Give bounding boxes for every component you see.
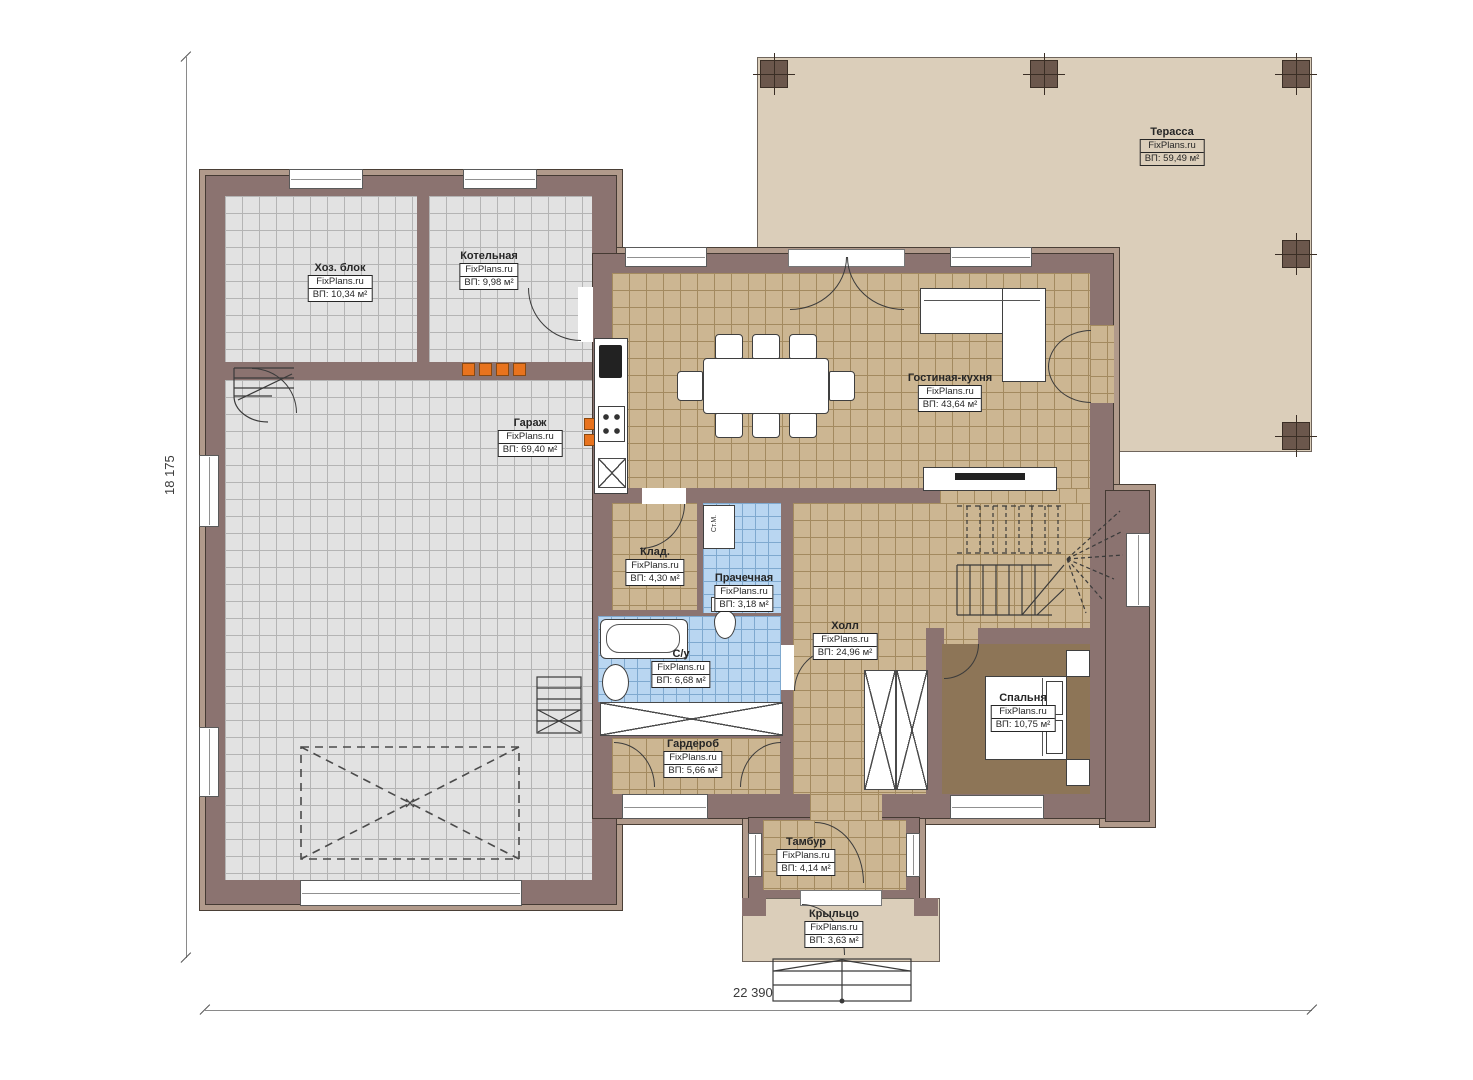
room-name: Котельная xyxy=(459,250,518,262)
utility-steps xyxy=(232,366,298,422)
porch-wall-stub xyxy=(914,898,938,916)
brand-label: FixPlans.ru xyxy=(652,662,709,675)
vent-marker xyxy=(496,363,509,376)
brand-label: FixPlans.ru xyxy=(626,560,683,573)
chair xyxy=(715,413,743,438)
room-area: ВП: 10,75 м² xyxy=(992,719,1055,731)
window xyxy=(199,727,219,797)
chair xyxy=(677,371,703,401)
washing-machine xyxy=(703,505,735,549)
room-label-pantry: Клад. FixPlans.ruВП: 4,30 м² xyxy=(625,546,684,586)
room-area: ВП: 6,68 м² xyxy=(652,675,709,687)
terrace-post xyxy=(1282,60,1310,88)
room-name: Прачечная xyxy=(714,572,773,584)
porch-wall-stub xyxy=(742,898,766,916)
garage-door xyxy=(300,880,522,906)
vent-marker xyxy=(513,363,526,376)
pantry-door-opening xyxy=(642,488,686,504)
vestibule-window xyxy=(748,833,762,877)
terrace-post xyxy=(1282,240,1310,268)
room-area: ВП: 9,98 м² xyxy=(460,277,517,289)
room-name: Терасса xyxy=(1140,126,1205,138)
stair-window xyxy=(1126,533,1150,607)
room-name: Холл xyxy=(813,620,878,632)
window xyxy=(625,247,707,267)
dining-table xyxy=(703,358,829,414)
chair xyxy=(829,371,855,401)
room-label-laundry: Прачечная FixPlans.ruВП: 3,18 м² xyxy=(714,572,773,612)
vent-marker xyxy=(462,363,475,376)
brand-label: FixPlans.ru xyxy=(664,752,721,765)
terrace-post xyxy=(1282,422,1310,450)
room-label-living-kitchen: Гостиная-кухня FixPlans.ruВП: 43,64 м² xyxy=(908,372,992,412)
sofa-seat-line xyxy=(924,300,1040,301)
room-label-terrace: Терасса FixPlans.ruВП: 59,49 м² xyxy=(1140,126,1205,166)
room-name: Гараж xyxy=(498,417,563,429)
room-label-wardrobe: Гардероб FixPlans.ruВП: 5,66 м² xyxy=(663,738,722,778)
room-area: ВП: 5,66 м² xyxy=(664,765,721,777)
room-label-boiler-room: Котельная FixPlans.ruВП: 9,98 м² xyxy=(459,250,518,290)
room-label-vestibule: Тамбур FixPlans.ruВП: 4,14 м² xyxy=(776,836,835,876)
room-label-porch: Крыльцо FixPlans.ruВП: 3,63 м² xyxy=(804,908,863,948)
sofa-chaise xyxy=(1002,288,1046,382)
washing-machine-label: Ст.М. xyxy=(711,515,718,532)
vent-marker xyxy=(479,363,492,376)
dimension-label-vertical: 18 175 xyxy=(162,455,177,495)
room-name: Хоз. блок xyxy=(308,262,373,274)
hall-cabinet xyxy=(864,670,896,790)
dimension-line-horizontal xyxy=(205,1010,1312,1011)
nightstand xyxy=(1066,759,1090,786)
floor-plan: Ст.М. xyxy=(0,0,1473,1080)
wardrobe-cabinet xyxy=(600,702,783,736)
brand-label: FixPlans.ru xyxy=(919,386,982,399)
chair xyxy=(752,334,780,359)
room-name: Гостиная-кухня xyxy=(908,372,992,384)
room-name: Клад. xyxy=(625,546,684,558)
dimension-label-horizontal: 22 390 xyxy=(733,985,773,1000)
hall-cabinet xyxy=(896,670,928,790)
brand-label: FixPlans.ru xyxy=(992,706,1055,719)
room-label-utility-block: Хоз. блок FixPlans.ruВП: 10,34 м² xyxy=(308,262,373,302)
room-label-garage: Гараж FixPlans.ruВП: 69,40 м² xyxy=(498,417,563,457)
room-name: Крыльцо xyxy=(804,908,863,920)
window xyxy=(289,169,363,189)
room-label-bedroom: Спальня FixPlans.ruВП: 10,75 м² xyxy=(991,692,1056,732)
bedroom-wall xyxy=(978,628,1092,644)
room-area: ВП: 3,63 м² xyxy=(805,935,862,947)
brand-label: FixPlans.ru xyxy=(309,276,372,289)
window xyxy=(463,169,537,189)
window xyxy=(199,455,219,527)
brand-label: FixPlans.ru xyxy=(777,850,834,863)
window xyxy=(622,794,708,819)
brand-label: FixPlans.ru xyxy=(715,586,772,599)
terrace-post xyxy=(760,60,788,88)
room-area: ВП: 4,14 м² xyxy=(777,863,834,875)
room-name: Спальня xyxy=(991,692,1056,704)
room-area: ВП: 59,49 м² xyxy=(1141,153,1204,165)
room-area: ВП: 10,34 м² xyxy=(309,289,372,301)
tv xyxy=(955,473,1025,480)
room-area: ВП: 43,64 м² xyxy=(919,399,982,411)
brand-label: FixPlans.ru xyxy=(805,922,862,935)
terrace-post xyxy=(1030,60,1058,88)
kitchen-cart xyxy=(598,458,626,488)
parking-space-marking xyxy=(300,746,520,860)
vestibule-window xyxy=(906,833,920,877)
vestibule-opening xyxy=(810,794,882,820)
brand-label: FixPlans.ru xyxy=(1141,140,1204,153)
brand-label: FixPlans.ru xyxy=(499,431,562,444)
terrace-side-door xyxy=(1090,325,1114,403)
chair xyxy=(789,334,817,359)
chair xyxy=(789,413,817,438)
porch-steps xyxy=(772,958,912,1002)
room-area: ВП: 3,18 м² xyxy=(715,599,772,611)
kitchen-sink xyxy=(599,345,622,378)
room-name: С/у xyxy=(651,648,710,660)
garage-steps xyxy=(536,676,582,734)
chair xyxy=(752,413,780,438)
room-area: ВП: 4,30 м² xyxy=(626,573,683,585)
room-label-bathroom: С/у FixPlans.ruВП: 6,68 м² xyxy=(651,648,710,688)
room-name: Гардероб xyxy=(663,738,722,750)
wash-basin xyxy=(602,664,629,701)
bathroom-door-opening xyxy=(781,645,794,690)
room-label-hall: Холл FixPlans.ruВП: 24,96 м² xyxy=(813,620,878,660)
room-area: ВП: 69,40 м² xyxy=(499,444,562,456)
main-staircase xyxy=(952,503,1125,619)
room-area: ВП: 24,96 м² xyxy=(814,647,877,659)
porch-door-opening xyxy=(800,890,882,906)
stove xyxy=(598,406,625,442)
bedroom-wall xyxy=(926,628,942,794)
dimension-line-vertical xyxy=(186,57,187,958)
brand-label: FixPlans.ru xyxy=(814,634,877,647)
room-name: Тамбур xyxy=(776,836,835,848)
chair xyxy=(715,334,743,359)
bedroom-window xyxy=(950,795,1044,819)
nightstand xyxy=(1066,650,1090,677)
window xyxy=(950,247,1032,267)
bedroom-wall xyxy=(926,628,944,644)
brand-label: FixPlans.ru xyxy=(460,264,517,277)
